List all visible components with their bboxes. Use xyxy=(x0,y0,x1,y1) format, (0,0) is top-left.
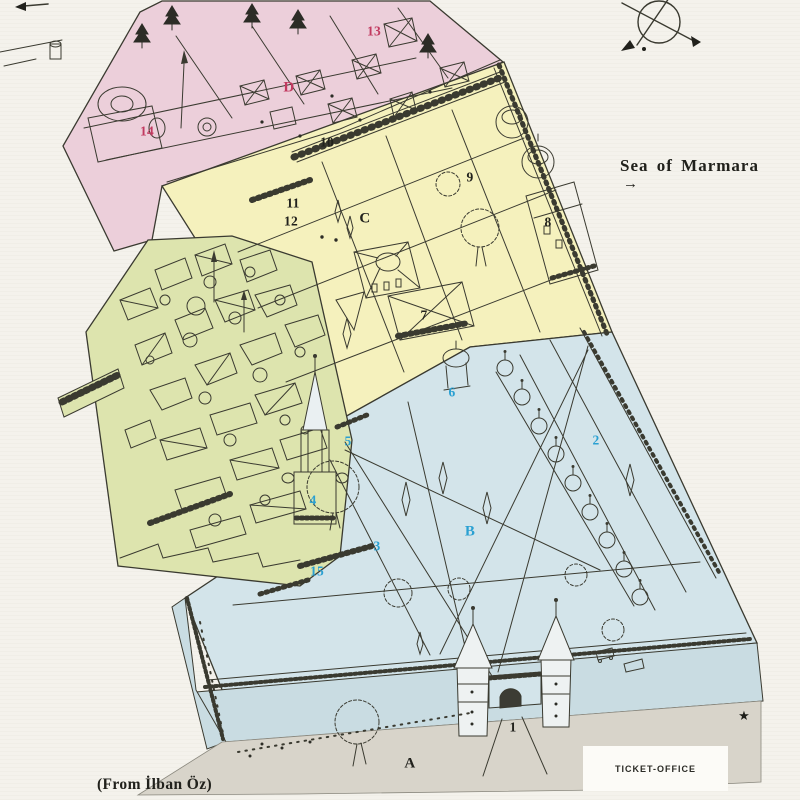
marker-14: 14 xyxy=(140,124,154,138)
marker-7: 7 xyxy=(420,308,427,322)
marker-12: 12 xyxy=(284,214,298,228)
road-lines xyxy=(0,40,62,66)
attribution-label: (From İlban Öz) xyxy=(97,776,212,794)
west-arrow-icon xyxy=(15,2,48,11)
marker-10: 10 xyxy=(320,135,334,149)
sea-direction-arrow-icon: → xyxy=(623,176,638,193)
marker-13: 13 xyxy=(367,24,381,38)
marker-D: D xyxy=(283,81,294,96)
sea-of-marmara-label: Sea of Marmara xyxy=(620,156,759,176)
ticket-office-label: TICKET-OFFICE xyxy=(615,764,696,774)
marker-1: 1 xyxy=(509,720,516,734)
star-icon: ★ xyxy=(738,708,750,724)
marker-C: C xyxy=(359,212,370,227)
marker-8: 8 xyxy=(544,215,551,229)
marker-11: 11 xyxy=(286,196,299,210)
ticket-office-box: TICKET-OFFICE xyxy=(583,746,728,791)
marker-5: 5 xyxy=(344,434,351,448)
marker-6: 6 xyxy=(448,385,455,399)
marker-15: 15 xyxy=(310,564,324,578)
map-artwork xyxy=(0,0,800,800)
compass-rose-icon xyxy=(621,0,701,51)
marker-9: 9 xyxy=(466,170,473,184)
marker-3: 3 xyxy=(373,539,380,553)
marker-4: 4 xyxy=(309,493,316,507)
marker-A: A xyxy=(404,757,415,772)
topkapi-map: Sea of Marmara → 13 D 14 10 9 11 C 12 8 … xyxy=(0,0,800,800)
marker-B: B xyxy=(465,525,475,540)
marker-2: 2 xyxy=(592,433,599,447)
